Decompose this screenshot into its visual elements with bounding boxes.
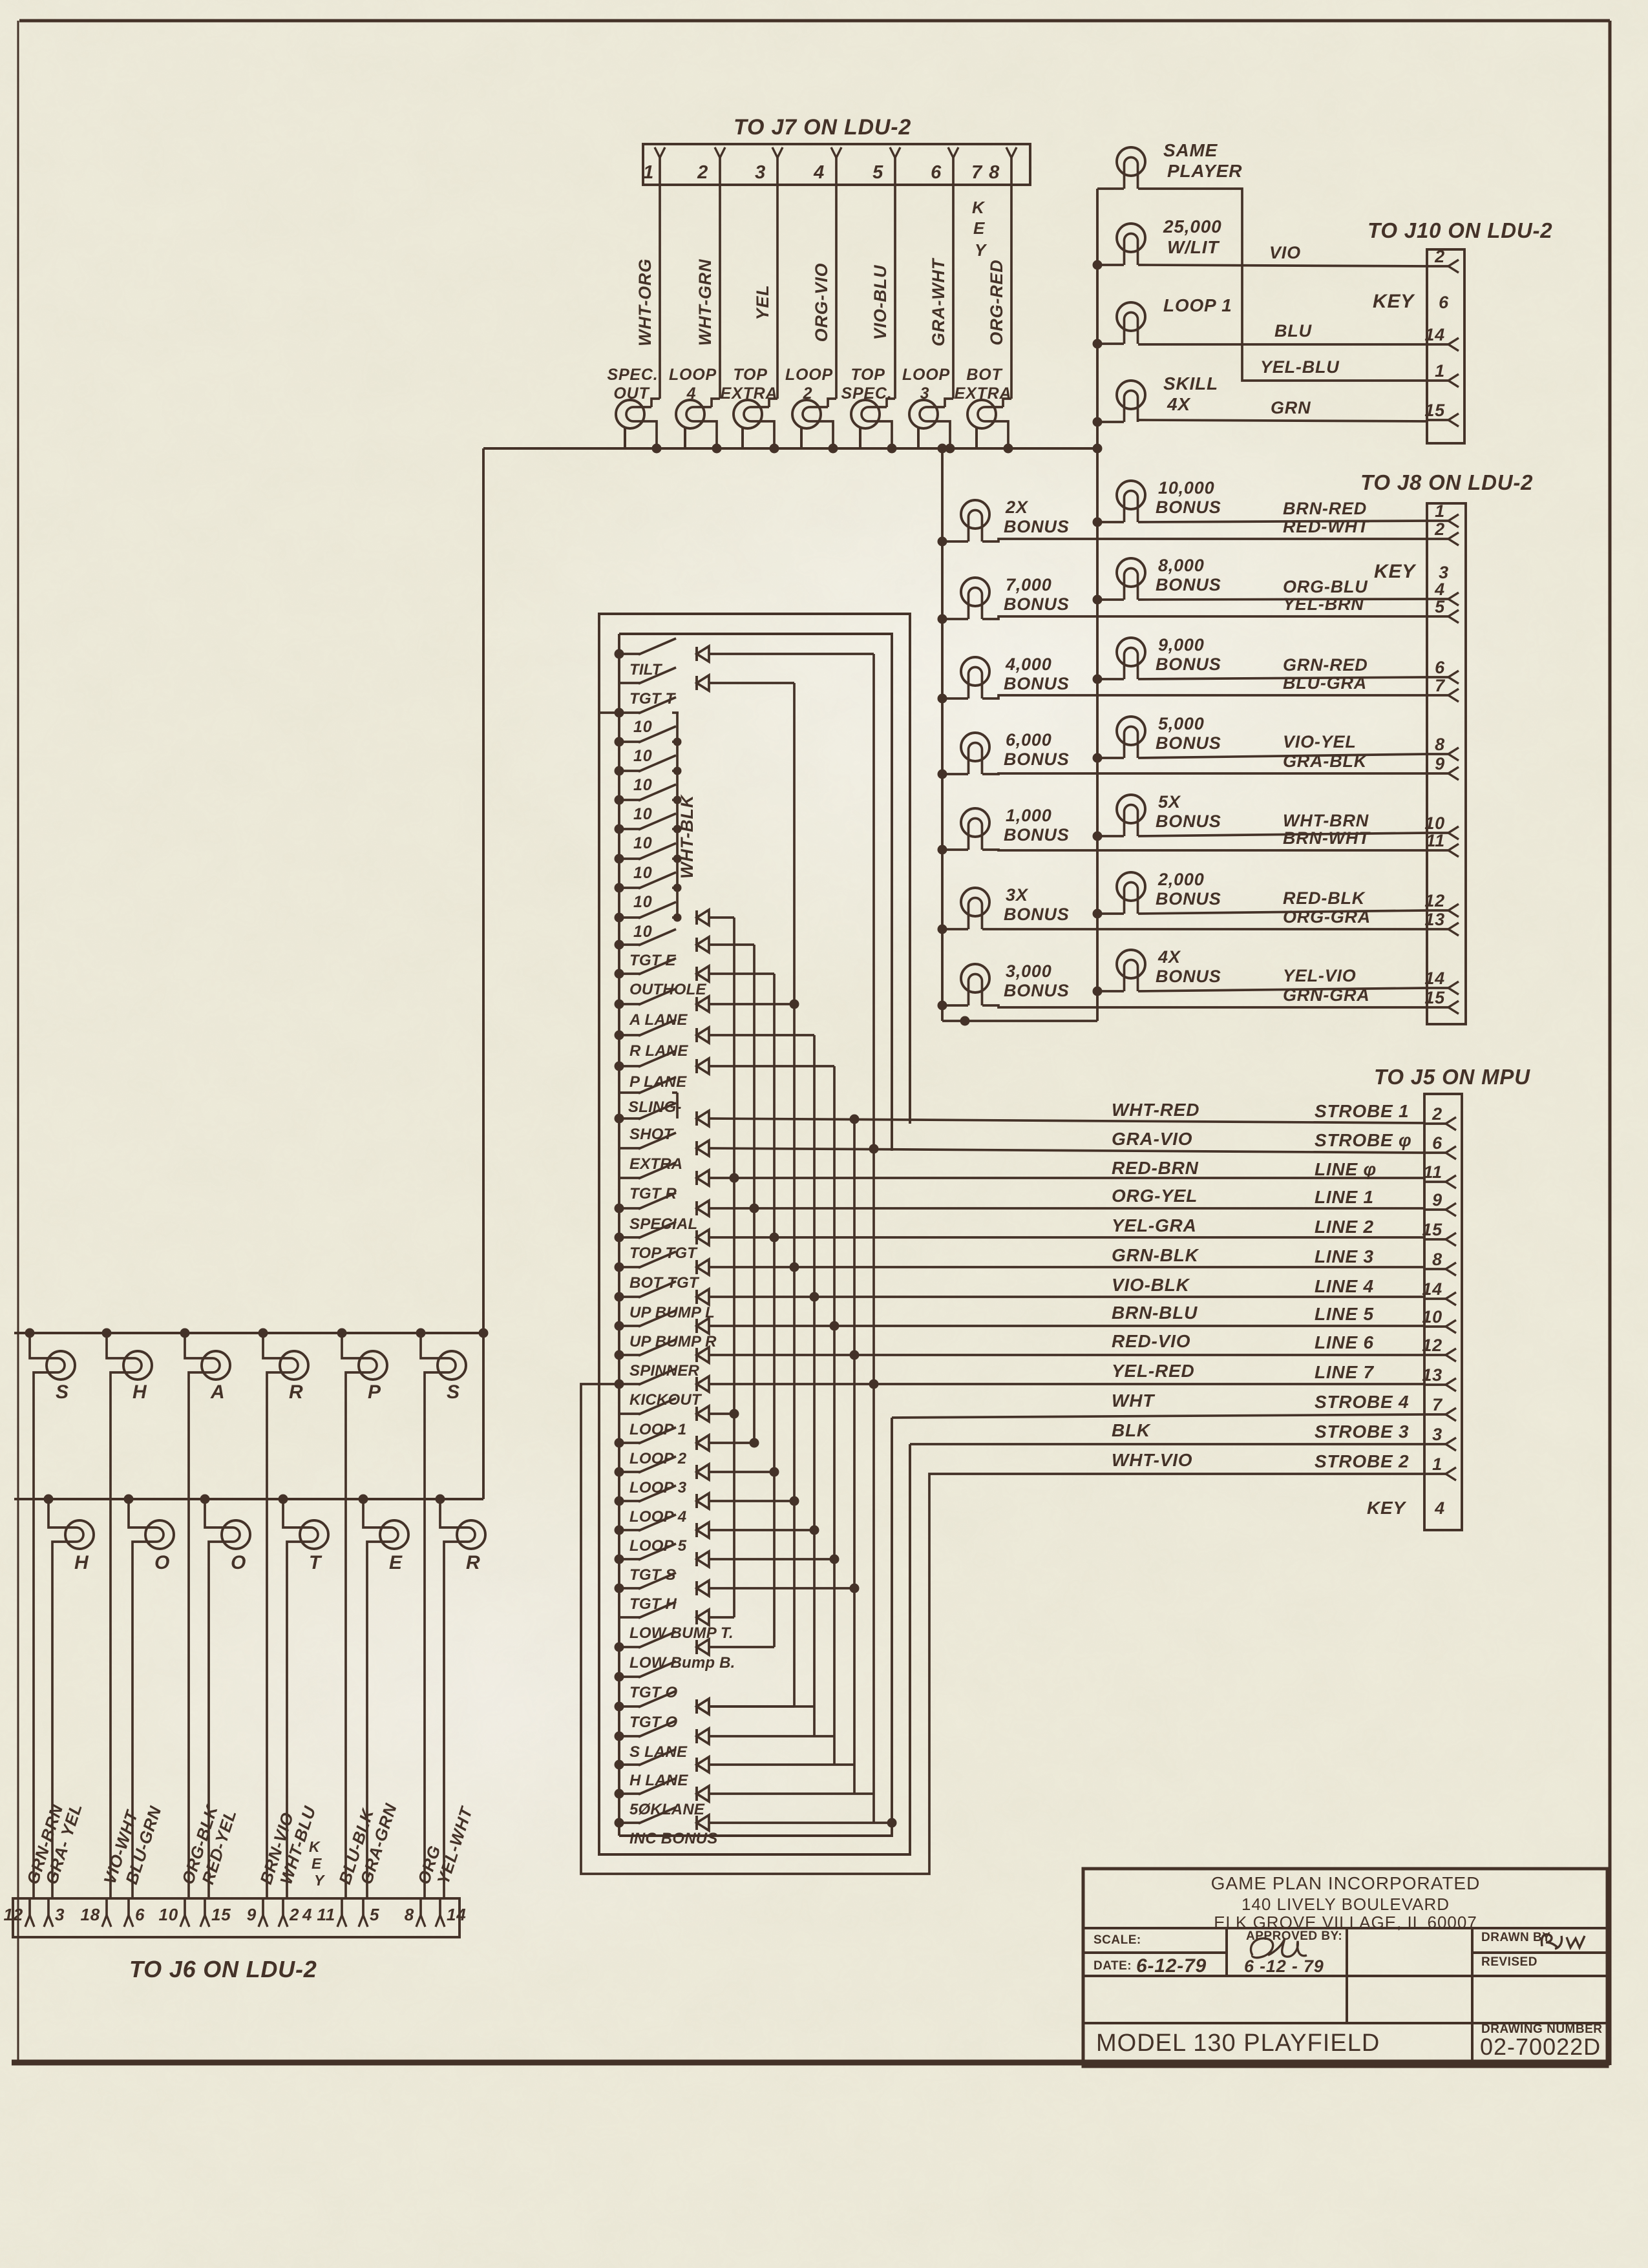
svg-text:4,000: 4,000 [1005, 655, 1052, 674]
svg-text:10: 10 [633, 834, 652, 852]
svg-text:GRN: GRN [1271, 398, 1311, 417]
svg-text:YEL-RED: YEL-RED [1112, 1361, 1195, 1381]
svg-text:TO J5 ON MPU: TO J5 ON MPU [1374, 1065, 1530, 1089]
svg-text:T: T [309, 1552, 322, 1573]
svg-text:LINE 6: LINE 6 [1315, 1332, 1374, 1352]
svg-text:10: 10 [1424, 814, 1445, 833]
svg-text:WHT-BLK: WHT-BLK [677, 793, 697, 879]
svg-text:8: 8 [1435, 735, 1445, 754]
svg-text:YEL: YEL [753, 285, 772, 320]
svg-text:15: 15 [211, 1905, 231, 1924]
svg-text:5: 5 [370, 1905, 379, 1924]
svg-text:7,000: 7,000 [1006, 575, 1052, 594]
svg-text:SPECIAL: SPECIAL [629, 1215, 697, 1233]
svg-text:REVISED: REVISED [1481, 1955, 1537, 1969]
svg-text:8: 8 [989, 162, 1000, 183]
svg-text:SCALE:: SCALE: [1093, 1933, 1141, 1947]
svg-text:10: 10 [633, 864, 652, 882]
svg-text:2: 2 [1434, 520, 1445, 539]
svg-text:GRA-BLK: GRA-BLK [1283, 751, 1368, 771]
svg-text:BONUS: BONUS [1156, 812, 1221, 831]
svg-text:14: 14 [1424, 325, 1445, 344]
svg-text:12: 12 [3, 1905, 23, 1924]
svg-text:BRN-RED: BRN-RED [1283, 499, 1367, 518]
svg-text:KEY: KEY [1367, 1498, 1406, 1518]
svg-text:PLAYER: PLAYER [1167, 161, 1242, 181]
svg-text:02-70022D: 02-70022D [1480, 2033, 1601, 2060]
svg-text:STROBE 1: STROBE 1 [1315, 1101, 1409, 1121]
svg-text:140 LIVELY BOULEVARD: 140 LIVELY BOULEVARD [1241, 1895, 1450, 1914]
svg-text:18: 18 [80, 1905, 100, 1924]
svg-text:YEL-GRA: YEL-GRA [1112, 1215, 1197, 1235]
svg-text:E: E [312, 1855, 322, 1872]
svg-text:E: E [973, 218, 985, 238]
svg-text:3: 3 [920, 384, 930, 403]
svg-text:K: K [309, 1838, 321, 1855]
svg-text:YEL-VIO: YEL-VIO [1283, 966, 1357, 985]
svg-text:BLU: BLU [1274, 321, 1313, 341]
svg-text:10: 10 [633, 747, 652, 765]
svg-text:ORG-RED: ORG-RED [987, 259, 1006, 345]
svg-text:VIO-BLK: VIO-BLK [1112, 1275, 1190, 1295]
svg-text:10: 10 [633, 923, 652, 941]
svg-text:6-12-79: 6-12-79 [1136, 1955, 1207, 1977]
svg-text:DRAWN BY: DRAWN BY [1481, 1931, 1550, 1944]
svg-text:DATE:: DATE: [1093, 1959, 1132, 1973]
svg-text:GAME PLAN INCORPORATED: GAME PLAN INCORPORATED [1211, 1873, 1481, 1893]
svg-text:LOOP: LOOP [785, 366, 833, 384]
svg-text:S: S [56, 1381, 69, 1403]
svg-text:10: 10 [633, 805, 652, 823]
svg-text:BONUS: BONUS [1004, 517, 1070, 536]
svg-text:KEY: KEY [1374, 561, 1417, 582]
svg-text:10: 10 [1422, 1307, 1442, 1327]
svg-text:WHT-RED: WHT-RED [1112, 1100, 1199, 1120]
svg-text:STROBE φ: STROBE φ [1315, 1130, 1412, 1150]
svg-text:STROBE 3: STROBE 3 [1315, 1422, 1409, 1442]
svg-text:5ØKLANE: 5ØKLANE [629, 1801, 705, 1818]
svg-text:BONUS: BONUS [1156, 733, 1221, 753]
svg-text:VIO-BLU: VIO-BLU [871, 264, 890, 340]
svg-text:KICKOUT: KICKOUT [629, 1391, 703, 1409]
svg-text:BRN-BLU: BRN-BLU [1112, 1303, 1198, 1323]
svg-text:R: R [466, 1552, 480, 1573]
svg-text:ORG-YEL: ORG-YEL [1112, 1186, 1198, 1206]
svg-text:3: 3 [755, 162, 766, 183]
svg-text:BLU-GRA: BLU-GRA [1283, 673, 1367, 693]
svg-text:BONUS: BONUS [1156, 889, 1221, 908]
svg-text:2: 2 [1434, 247, 1445, 266]
svg-text:10: 10 [633, 776, 652, 794]
svg-text:TO J6 ON LDU-2: TO J6 ON LDU-2 [129, 1956, 317, 1982]
svg-text:K: K [972, 198, 986, 217]
svg-text:SHOT: SHOT [629, 1126, 675, 1143]
svg-text:WHT-BRN: WHT-BRN [1283, 811, 1369, 830]
svg-text:11: 11 [1423, 1162, 1442, 1182]
svg-text:BONUS: BONUS [1156, 575, 1221, 594]
svg-text:9,000: 9,000 [1158, 635, 1205, 655]
svg-text:LINE φ: LINE φ [1315, 1159, 1377, 1179]
svg-text:SAME: SAME [1163, 140, 1218, 160]
svg-text:LINE 3: LINE 3 [1315, 1246, 1374, 1266]
svg-text:BONUS: BONUS [1004, 674, 1070, 693]
svg-text:4: 4 [686, 384, 697, 403]
svg-text:LINE 4: LINE 4 [1315, 1276, 1374, 1296]
svg-text:RED-BRN: RED-BRN [1112, 1158, 1199, 1178]
svg-text:YEL-WHT: YEL-WHT [433, 1803, 476, 1886]
svg-text:BLK: BLK [1112, 1420, 1151, 1440]
svg-text:14: 14 [1424, 969, 1445, 988]
svg-text:TOP: TOP [850, 366, 885, 384]
svg-text:INC BONUS: INC BONUS [629, 1830, 717, 1847]
svg-text:3: 3 [55, 1905, 65, 1924]
svg-text:14: 14 [447, 1905, 467, 1924]
svg-text:WHT: WHT [1112, 1391, 1156, 1411]
svg-text:GRN-GRA: GRN-GRA [1283, 985, 1370, 1005]
svg-text:YEL-BRN: YEL-BRN [1283, 594, 1364, 614]
svg-text:A: A [210, 1381, 225, 1403]
svg-text:6: 6 [931, 162, 942, 183]
svg-text:4: 4 [302, 1905, 312, 1924]
svg-text:SPEC.: SPEC. [607, 366, 658, 384]
svg-text:RED-WHT: RED-WHT [1283, 517, 1370, 536]
svg-text:WHT-GRN: WHT-GRN [695, 259, 715, 346]
svg-text:6 -12 - 79: 6 -12 - 79 [1244, 1957, 1324, 1976]
svg-text:3X: 3X [1006, 885, 1029, 905]
svg-text:BONUS: BONUS [1004, 750, 1070, 769]
svg-text:5: 5 [1435, 597, 1445, 616]
svg-text:2,000: 2,000 [1157, 870, 1205, 889]
svg-text:S LANE: S LANE [629, 1743, 688, 1761]
svg-text:11: 11 [1426, 831, 1445, 850]
svg-text:GRN-BLK: GRN-BLK [1112, 1245, 1199, 1265]
svg-text:SPEC.: SPEC. [841, 384, 892, 403]
svg-text:4: 4 [1434, 580, 1445, 599]
svg-text:15: 15 [1424, 988, 1445, 1007]
svg-text:2: 2 [289, 1905, 299, 1924]
svg-text:TOP TGT: TOP TGT [629, 1244, 698, 1262]
svg-text:LINE 5: LINE 5 [1315, 1304, 1374, 1324]
svg-text:5: 5 [872, 162, 883, 183]
svg-text:ORG-VIO: ORG-VIO [812, 263, 831, 342]
svg-text:P: P [368, 1381, 381, 1403]
svg-text:2: 2 [697, 162, 708, 183]
svg-text:6: 6 [135, 1905, 145, 1924]
svg-text:VIO: VIO [1269, 243, 1301, 262]
svg-text:S: S [447, 1381, 460, 1403]
svg-text:4X: 4X [1167, 394, 1191, 414]
svg-text:OUTHOLE: OUTHOLE [629, 981, 707, 998]
svg-text:RED-BLK: RED-BLK [1283, 888, 1366, 908]
svg-text:BONUS: BONUS [1004, 594, 1070, 614]
svg-text:13: 13 [1424, 910, 1445, 929]
svg-text:RED-VIO: RED-VIO [1112, 1331, 1190, 1351]
svg-text:14: 14 [1422, 1279, 1442, 1299]
svg-text:TO J10 ON LDU-2: TO J10 ON LDU-2 [1368, 218, 1552, 242]
svg-text:GRA-VIO: GRA-VIO [1112, 1129, 1192, 1149]
svg-text:6,000: 6,000 [1006, 730, 1052, 750]
svg-text:GRA-WHT: GRA-WHT [929, 257, 948, 346]
svg-text:WHT-ORG: WHT-ORG [635, 258, 655, 346]
svg-text:TO J8 ON LDU-2: TO J8 ON LDU-2 [1360, 470, 1533, 494]
svg-text:7: 7 [1432, 1395, 1443, 1414]
svg-text:1: 1 [1432, 1454, 1442, 1474]
svg-text:VIO-YEL: VIO-YEL [1283, 732, 1357, 751]
svg-text:12: 12 [1422, 1336, 1442, 1355]
svg-text:9: 9 [247, 1905, 257, 1924]
svg-text:GRN-RED: GRN-RED [1283, 655, 1368, 675]
svg-text:15: 15 [1424, 401, 1445, 420]
svg-text:LINE 2: LINE 2 [1315, 1217, 1374, 1237]
svg-text:8,000: 8,000 [1158, 556, 1205, 575]
svg-text:1: 1 [1435, 361, 1445, 381]
svg-text:3,000: 3,000 [1006, 961, 1052, 981]
svg-text:15: 15 [1422, 1220, 1442, 1239]
svg-text:Y: Y [314, 1872, 326, 1889]
svg-text:12: 12 [1424, 891, 1445, 910]
svg-text:STROBE 2: STROBE 2 [1315, 1451, 1409, 1471]
svg-text:BONUS: BONUS [1156, 655, 1221, 674]
svg-text:LOW Bump B.: LOW Bump B. [629, 1654, 735, 1672]
svg-text:6: 6 [1439, 293, 1449, 312]
svg-text:SPINNER: SPINNER [629, 1362, 700, 1380]
svg-text:LOOP 1: LOOP 1 [1163, 295, 1232, 315]
svg-text:ORG-GRA: ORG-GRA [1283, 907, 1371, 927]
svg-text:2X: 2X [1005, 498, 1029, 517]
svg-text:OUT: OUT [613, 384, 650, 403]
svg-text:STROBE 4: STROBE 4 [1315, 1392, 1409, 1412]
svg-text:LINE 7: LINE 7 [1315, 1362, 1375, 1382]
svg-text:9: 9 [1435, 754, 1445, 773]
svg-text:LINE 1: LINE 1 [1315, 1187, 1374, 1207]
svg-text:BONUS: BONUS [1156, 967, 1221, 986]
svg-text:TGT R: TGT R [629, 1185, 677, 1202]
svg-text:5X: 5X [1158, 792, 1181, 812]
svg-text:9: 9 [1432, 1190, 1442, 1210]
svg-text:1: 1 [1435, 501, 1445, 521]
svg-text:YEL-BLU: YEL-BLU [1260, 357, 1340, 377]
svg-text:5,000: 5,000 [1158, 714, 1205, 733]
svg-text:25,000: 25,000 [1163, 216, 1221, 236]
svg-text:EXTRA: EXTRA [955, 384, 1012, 403]
svg-text:APPROVED BY:: APPROVED BY: [1246, 1929, 1342, 1943]
svg-text:13: 13 [1422, 1365, 1442, 1385]
svg-text:BOT: BOT [966, 366, 1003, 384]
svg-text:6: 6 [1435, 658, 1445, 677]
svg-text:R: R [289, 1381, 303, 1403]
svg-text:10,000: 10,000 [1158, 478, 1214, 498]
svg-text:H: H [132, 1381, 147, 1403]
svg-text:8: 8 [1432, 1250, 1442, 1269]
svg-text:1,000: 1,000 [1006, 806, 1052, 825]
svg-text:Y: Y [975, 240, 988, 260]
svg-text:2: 2 [1431, 1104, 1442, 1124]
svg-text:TO J7 ON LDU-2: TO J7 ON LDU-2 [734, 115, 911, 140]
svg-text:7: 7 [971, 162, 983, 183]
svg-text:10: 10 [633, 893, 652, 911]
svg-text:P LANE: P LANE [629, 1073, 687, 1091]
svg-text:4X: 4X [1157, 947, 1181, 967]
svg-text:BONUS: BONUS [1004, 825, 1070, 845]
svg-text:MODEL 130 PLAYFIELD: MODEL 130 PLAYFIELD [1096, 2030, 1380, 2057]
svg-text:10: 10 [633, 718, 652, 736]
svg-text:11: 11 [317, 1905, 335, 1924]
svg-text:LOOP: LOOP [669, 366, 717, 384]
svg-text:8: 8 [405, 1905, 414, 1924]
svg-text:6: 6 [1432, 1133, 1442, 1153]
svg-text:LOOP: LOOP [902, 366, 950, 384]
svg-text:O: O [154, 1552, 170, 1573]
svg-text:7: 7 [1435, 676, 1446, 695]
svg-text:BONUS: BONUS [1004, 905, 1070, 924]
svg-text:BRN-WHT: BRN-WHT [1283, 828, 1371, 848]
svg-text:W/LIT: W/LIT [1167, 237, 1220, 257]
svg-text:ORG-BLU: ORG-BLU [1283, 577, 1368, 596]
svg-text:H: H [74, 1552, 89, 1573]
svg-text:E: E [389, 1552, 403, 1573]
svg-text:KEY: KEY [1373, 291, 1415, 312]
svg-text:BONUS: BONUS [1156, 498, 1221, 517]
svg-text:LOW BUMP T.: LOW BUMP T. [629, 1624, 734, 1642]
svg-text:10: 10 [158, 1905, 178, 1924]
svg-text:BONUS: BONUS [1004, 981, 1070, 1000]
svg-text:1: 1 [643, 162, 654, 183]
svg-text:4: 4 [1434, 1498, 1445, 1518]
svg-text:4: 4 [813, 162, 825, 183]
svg-text:BOT TGT: BOT TGT [629, 1274, 700, 1292]
svg-text:TOP: TOP [733, 366, 767, 384]
svg-text:O: O [231, 1552, 246, 1573]
svg-text:EXTRA: EXTRA [721, 384, 778, 403]
svg-text:WHT-VIO: WHT-VIO [1112, 1450, 1192, 1470]
svg-text:2: 2 [803, 384, 813, 403]
svg-text:SKILL: SKILL [1163, 373, 1218, 394]
svg-text:3: 3 [1432, 1425, 1442, 1444]
